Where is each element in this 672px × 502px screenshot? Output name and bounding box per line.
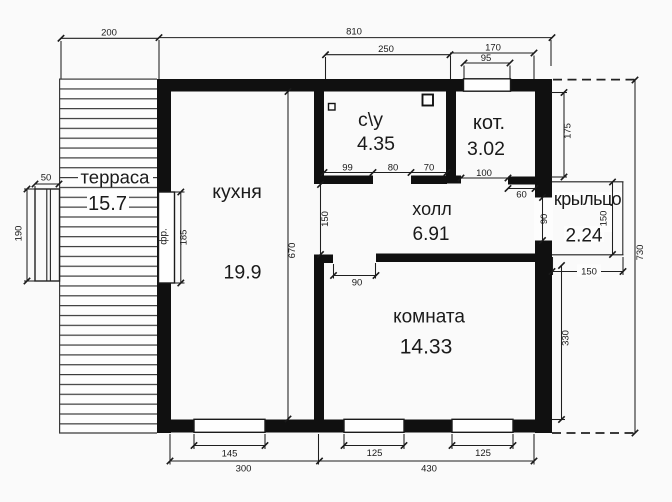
svg-text:2.24: 2.24 xyxy=(566,226,603,247)
svg-text:190: 190 xyxy=(14,226,25,242)
svg-text:80: 80 xyxy=(388,163,399,174)
svg-text:4.35: 4.35 xyxy=(357,133,395,155)
svg-text:150: 150 xyxy=(320,211,331,227)
svg-text:330: 330 xyxy=(561,330,572,346)
svg-text:холл: холл xyxy=(412,199,451,219)
svg-text:кухня: кухня xyxy=(212,181,262,203)
svg-text:комната: комната xyxy=(393,307,465,328)
svg-text:50: 50 xyxy=(41,173,52,184)
svg-text:670: 670 xyxy=(287,243,298,259)
svg-text:145: 145 xyxy=(222,449,238,460)
svg-text:6.91: 6.91 xyxy=(413,224,450,245)
svg-text:810: 810 xyxy=(346,27,362,38)
svg-text:250: 250 xyxy=(378,44,394,55)
svg-text:90: 90 xyxy=(352,278,363,289)
svg-text:200: 200 xyxy=(101,28,117,39)
svg-text:15.7: 15.7 xyxy=(88,193,127,215)
svg-text:99: 99 xyxy=(342,163,353,174)
svg-text:100: 100 xyxy=(476,168,492,179)
svg-text:125: 125 xyxy=(475,448,491,459)
svg-text:730: 730 xyxy=(635,245,646,261)
svg-text:430: 430 xyxy=(421,464,437,475)
svg-text:175: 175 xyxy=(563,123,574,139)
svg-text:фр.: фр. xyxy=(158,228,170,245)
svg-text:125: 125 xyxy=(367,448,383,459)
svg-text:150: 150 xyxy=(599,211,610,227)
svg-text:кот.: кот. xyxy=(473,112,505,134)
svg-text:терраса: терраса xyxy=(81,167,151,188)
svg-text:300: 300 xyxy=(236,464,252,475)
svg-text:3.02: 3.02 xyxy=(467,138,505,160)
svg-text:19.9: 19.9 xyxy=(224,262,262,284)
svg-text:с\у: с\у xyxy=(358,109,383,131)
svg-text:150: 150 xyxy=(581,267,597,278)
svg-text:70: 70 xyxy=(424,163,435,174)
svg-text:14.33: 14.33 xyxy=(400,336,453,359)
svg-text:90: 90 xyxy=(539,214,550,225)
svg-text:185: 185 xyxy=(179,230,190,246)
svg-text:95: 95 xyxy=(481,53,492,64)
svg-text:60: 60 xyxy=(516,190,527,201)
